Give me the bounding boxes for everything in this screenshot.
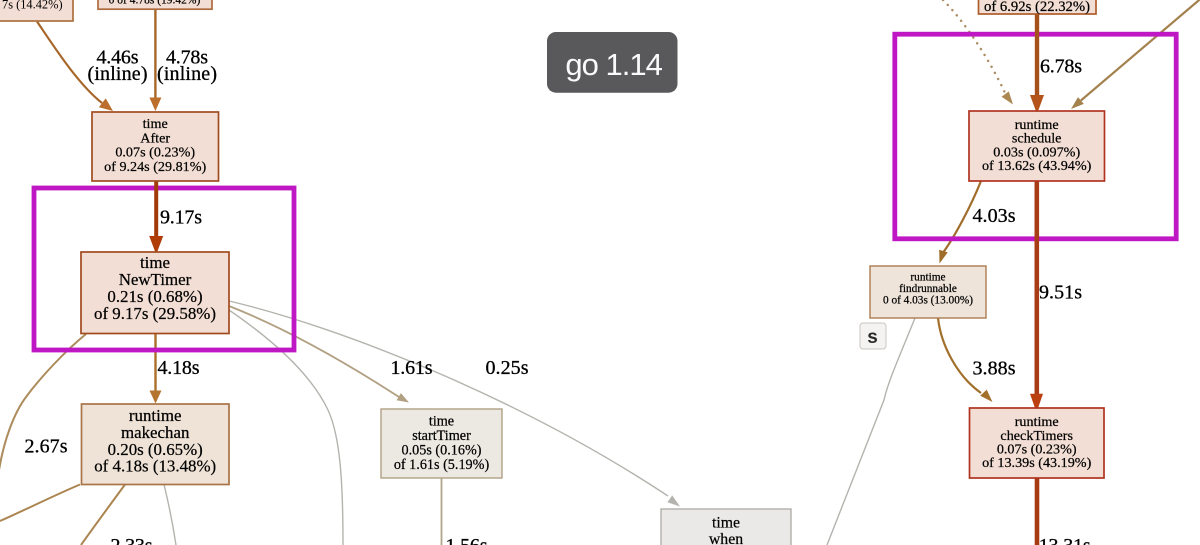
svg-text:6.78s: 6.78s — [1040, 56, 1082, 78]
svg-text:of 9.24s (29.81%): of 9.24s (29.81%) — [104, 159, 206, 175]
svg-text:2.33s: 2.33s — [111, 535, 153, 545]
svg-text:of 9.17s (29.58%): of 9.17s (29.58%) — [94, 304, 216, 323]
svg-text:runtime: runtime — [910, 272, 945, 284]
svg-text:9.51s: 9.51s — [1039, 282, 1082, 304]
svg-text:2.67s: 2.67s — [25, 436, 68, 458]
svg-text:9.17s: 9.17s — [160, 206, 202, 228]
svg-text:of 1.61s (5.19%): of 1.61s (5.19%) — [394, 457, 490, 473]
svg-text:time: time — [712, 515, 740, 532]
svg-text:1.61s: 1.61s — [391, 357, 433, 379]
svg-text:0.25s: 0.25s — [486, 357, 529, 379]
svg-text:of 4.18s (13.48%): of 4.18s (13.48%) — [94, 457, 216, 476]
svg-text:of 13.62s (43.94%): of 13.62s (43.94%) — [982, 158, 1092, 174]
svg-text:13.31s: 13.31s — [1039, 535, 1091, 545]
svg-text:0 of 4.03s (13.00%): 0 of 4.03s (13.00%) — [883, 295, 973, 307]
svg-text:7s (14.42%): 7s (14.42%) — [2, 0, 63, 12]
svg-text:of 13.39s (43.19%): of 13.39s (43.19%) — [982, 455, 1091, 471]
svg-text:s: s — [867, 327, 878, 348]
svg-text:(inline): (inline) — [157, 63, 217, 85]
svg-text:go 1.14: go 1.14 — [565, 47, 662, 82]
svg-text:3.88s: 3.88s — [973, 358, 1016, 380]
svg-text:4.03s: 4.03s — [973, 205, 1016, 227]
svg-text:1.56s: 1.56s — [446, 535, 488, 545]
svg-text:4.18s: 4.18s — [158, 357, 200, 379]
svg-text:(inline): (inline) — [88, 63, 148, 85]
svg-text:when: when — [709, 531, 743, 545]
svg-text:of 6.92s (22.32%): of 6.92s (22.32%) — [984, 0, 1090, 15]
svg-text:0 of 4.78s (19.42%): 0 of 4.78s (19.42%) — [109, 0, 201, 7]
svg-text:findrunnable: findrunnable — [899, 283, 957, 295]
